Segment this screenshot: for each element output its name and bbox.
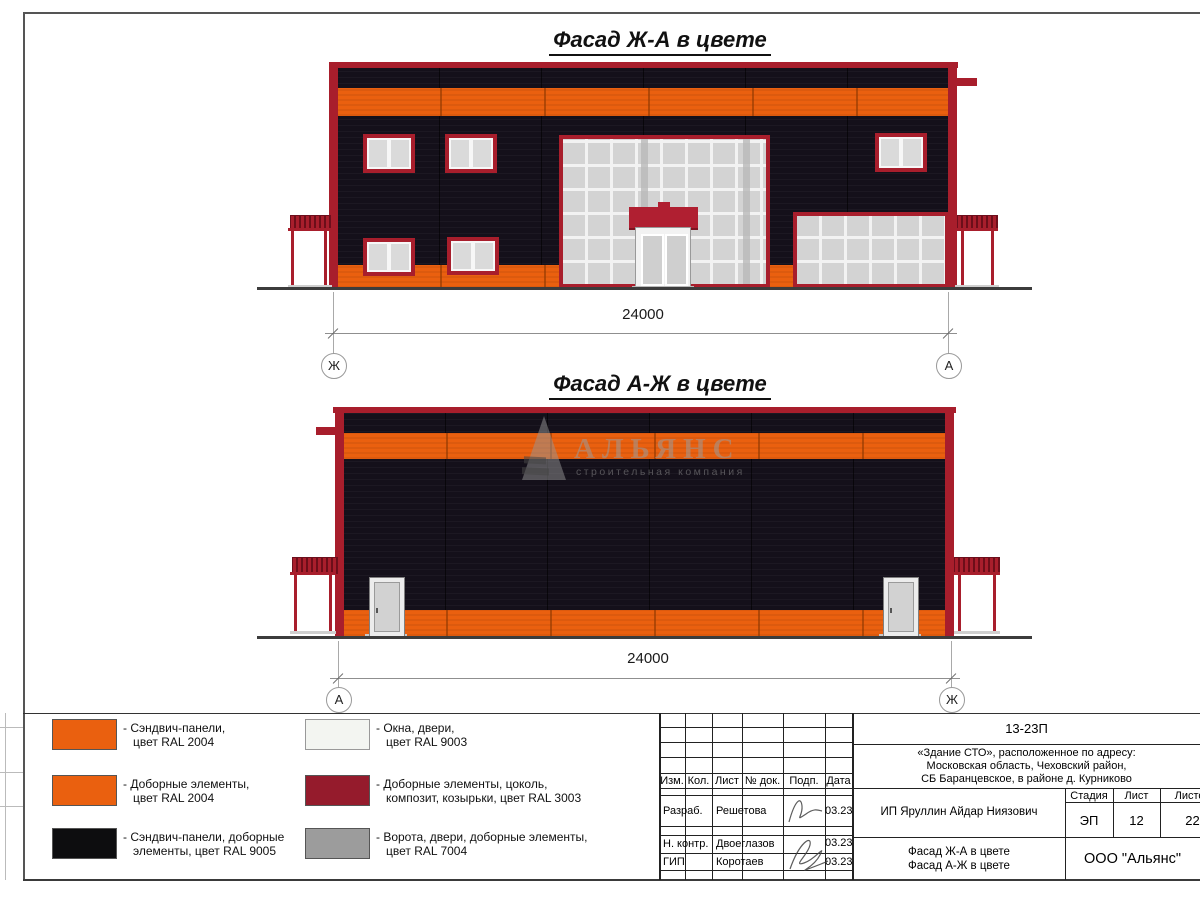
showcase-glazing: [797, 216, 945, 284]
titleblock-line: [659, 713, 661, 880]
legend-line: цвет RAL 7004: [376, 844, 587, 858]
sheets-total: 22: [1160, 813, 1200, 828]
legend-swatch: [305, 828, 370, 859]
signature: [786, 794, 824, 826]
titleblock-line: [659, 727, 853, 728]
facade2-title: Фасад А-Ж в цвете: [410, 371, 910, 397]
canopy-pad: [954, 631, 1000, 634]
row-role: Разраб.: [663, 805, 713, 817]
facade1-showcase: [793, 212, 949, 288]
margin-tick: [0, 806, 23, 807]
col-header-date: Дата: [825, 775, 852, 787]
facade1-axis-left: Ж: [321, 353, 347, 379]
frame-top: [23, 12, 1200, 14]
facade1-flashing-tab: [957, 78, 977, 86]
legend-line: композит, козырьки, цвет RAL 3003: [376, 791, 581, 805]
facade1-orange-band: [338, 88, 948, 116]
doc-number: 13-23П: [853, 721, 1200, 736]
legend-label: - Окна, двери, цвет RAL 9003: [376, 721, 467, 749]
titleblock-line: [659, 826, 853, 827]
legend-line: цвет RAL 9003: [376, 735, 467, 749]
extension-line: [951, 641, 952, 688]
canopy-pad: [290, 631, 336, 634]
door-leaf: [641, 234, 664, 286]
dimension-line: [330, 678, 960, 679]
door-leaf: [888, 582, 914, 632]
legend-line: элементы, цвет RAL 9005: [123, 844, 284, 858]
titleblock-line: [742, 713, 743, 880]
facade2-column-left: [335, 413, 344, 637]
titleblock-line: [659, 773, 853, 774]
facade1-dimension-text: 24000: [563, 306, 723, 323]
canopy-post: [329, 575, 332, 632]
facade2-axis-left: А: [326, 687, 352, 713]
sheets-total-label: Листов: [1160, 790, 1200, 802]
stage-value: ЭП: [1065, 813, 1113, 828]
legend-label: - Ворота, двери, доборные элементы, цвет…: [376, 830, 587, 858]
canopy-post: [324, 231, 327, 286]
subject-line2: Фасад А-Ж в цвете: [853, 860, 1065, 872]
titleblock-line: [712, 713, 713, 880]
row-date: 03.23: [825, 805, 852, 817]
watermark-brand: АЛЬЯНС: [574, 433, 741, 466]
canopy-post: [961, 231, 964, 286]
watermark-tagline: строительная компания: [576, 466, 745, 478]
canopy-post: [993, 575, 996, 632]
legend-line: - Окна, двери,: [376, 721, 467, 735]
entrance-canopy: [629, 207, 698, 230]
facade1-column-right: [948, 68, 957, 289]
extension-line: [948, 292, 949, 354]
facade1-title: Фасад Ж-А в цвете: [410, 27, 910, 53]
titleblock-line: [659, 742, 853, 743]
legend-swatch: [52, 719, 117, 750]
col-header-list: Лист: [712, 775, 742, 787]
facade2-door-left: [369, 577, 405, 637]
legend-line: - Сэндвич-панели, доборные: [123, 830, 284, 844]
extension-line: [333, 292, 334, 354]
legend-swatch: [52, 775, 117, 806]
titleblock-line: [783, 713, 784, 880]
signature: [786, 833, 830, 875]
facade2-dimension-text: 24000: [568, 650, 728, 667]
margin-tick: [0, 772, 23, 773]
margin-line: [5, 713, 6, 880]
row-role: Н. контр.: [663, 838, 713, 850]
window: [875, 133, 927, 172]
subject-line1: Фасад Ж-А в цвете: [853, 846, 1065, 858]
legend-label: - Доборные элементы, цвет RAL 2004: [123, 777, 249, 805]
facade1-column-left: [329, 68, 338, 289]
curtain-mullion: [743, 139, 750, 284]
legend-line: - Ворота, двери, доборные элементы,: [376, 830, 587, 844]
legend-label: - Доборные элементы, цоколь, композит, к…: [376, 777, 581, 805]
canopy-post: [291, 231, 294, 286]
window: [363, 134, 415, 173]
client-name: ИП Яруллин Айдар Ниязович: [853, 806, 1065, 818]
legend-line: цвет RAL 2004: [123, 791, 249, 805]
legend-line: цвет RAL 2004: [123, 735, 225, 749]
legend-line: - Сэндвич-панели,: [123, 721, 225, 735]
canopy-post: [294, 575, 297, 632]
row-name: Двоеглазов: [716, 838, 782, 850]
facade2-ground-line: [257, 636, 1032, 639]
legend-swatch: [52, 828, 117, 859]
door-leaf: [374, 582, 400, 632]
col-header-kol: Кол.: [685, 775, 712, 787]
alliance-pyramid-logo: [520, 416, 566, 480]
door-leaf: [665, 234, 688, 286]
titleblock-line: [853, 788, 1200, 789]
margin-tick: [0, 727, 23, 728]
legend-line: - Доборные элементы, цоколь,: [376, 777, 581, 791]
canopy-post: [991, 231, 994, 286]
canopy-post: [958, 575, 961, 632]
window: [447, 237, 499, 275]
row-role: ГИП: [663, 856, 713, 868]
col-header-doc: № док.: [742, 775, 783, 787]
legend-label: - Сэндвич-панели, доборные элементы, цве…: [123, 830, 284, 858]
company-name: ООО "Альянс": [1065, 851, 1200, 867]
drawing-sheet: Фасад Ж-А в цвете 24000 Ж А: [0, 0, 1200, 900]
window: [445, 134, 497, 173]
entrance-door: [636, 228, 690, 288]
titleblock-line: [685, 713, 686, 880]
legend-label: - Сэндвич-панели, цвет RAL 2004: [123, 721, 225, 749]
facade1-axis-right: А: [936, 353, 962, 379]
col-header-sign: Подп.: [783, 775, 825, 787]
row-name: Решетова: [716, 805, 782, 817]
titleblock-line: [659, 788, 853, 789]
stage-label: Стадия: [1065, 790, 1113, 802]
frame-bottom: [23, 879, 1200, 881]
facade2-plinth: [344, 610, 945, 636]
frame-separator: [23, 713, 1200, 714]
titleblock-line: [853, 837, 1200, 838]
project-address-line1: «Здание СТО», расположенное по адресу:: [853, 747, 1200, 761]
titleblock-line: [853, 744, 1200, 745]
legend-swatch: [305, 719, 370, 750]
extension-line: [338, 641, 339, 688]
row-name: Коротаев: [716, 856, 782, 868]
titleblock-line: [1065, 802, 1200, 803]
door-handle: [890, 608, 892, 613]
facade2-axis-right: Ж: [939, 687, 965, 713]
legend-swatch: [305, 775, 370, 806]
col-header-izm: Изм.: [659, 775, 685, 787]
dimension-line: [325, 333, 957, 334]
facade2-door-right: [883, 577, 919, 637]
door-handle: [376, 608, 378, 613]
project-address-line2: Московская область, Чеховский район,: [853, 760, 1200, 774]
facade2-column-right: [945, 413, 954, 637]
window: [363, 238, 415, 276]
facade1-ground-line: [257, 287, 1032, 290]
titleblock-line: [659, 757, 853, 758]
sheet-label: Лист: [1113, 790, 1160, 802]
frame-left: [23, 12, 25, 881]
legend-line: - Доборные элементы,: [123, 777, 249, 791]
project-address-line3: СБ Баранцевское, в районе д. Курниково: [853, 773, 1200, 787]
sheet-number: 12: [1113, 813, 1160, 828]
facade2-flashing-tab: [316, 427, 337, 435]
